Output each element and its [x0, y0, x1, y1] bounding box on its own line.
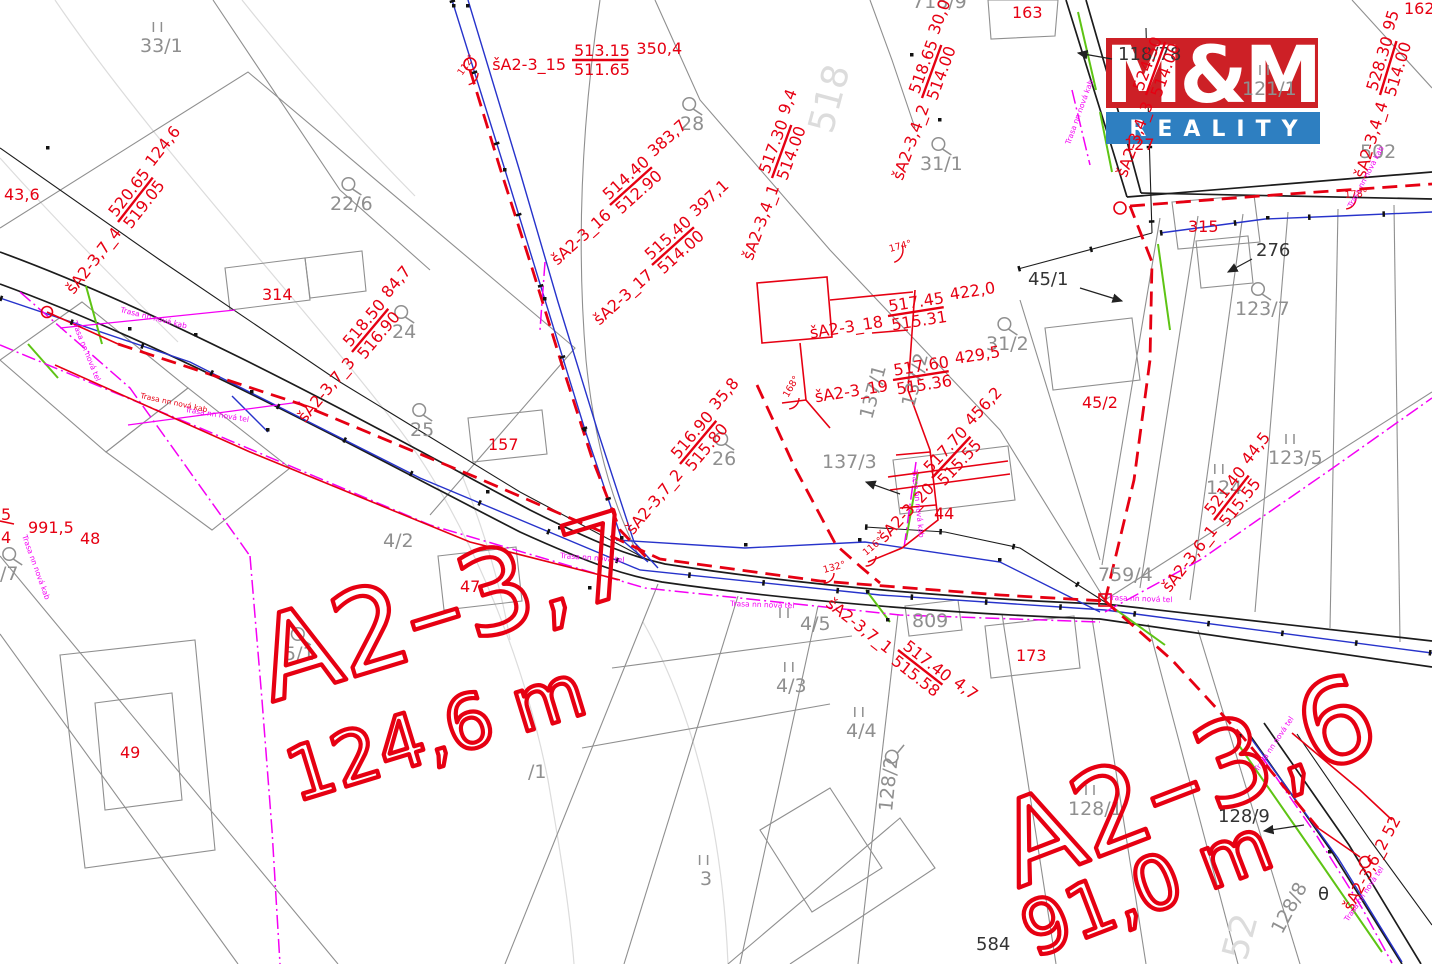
map-label: 49 — [120, 743, 140, 762]
shaft-chainage: 124,6 — [141, 122, 184, 170]
map-label: 4 — [1, 528, 11, 547]
shaft-name: šA2-3,4_1 — [738, 182, 784, 263]
angle-annotation: 174° — [888, 238, 913, 255]
shaft-label: šA2-3,7_3518.50516.9084,7 — [281, 262, 430, 429]
land-use-II-icon — [785, 662, 793, 672]
map-label: 3 — [700, 855, 712, 890]
shaft-name: šA2-3_17 — [589, 265, 657, 329]
trasa-annotation: Trasa nn nová tel — [1107, 593, 1173, 604]
map-label-text: 276 — [1256, 240, 1290, 261]
land-use-II-icon — [700, 855, 708, 865]
map-label: 31/1 — [920, 138, 963, 175]
shaft-chainage: 4,7 — [950, 673, 982, 704]
leader-arrow-icon — [1228, 259, 1252, 272]
trasa-annotation: Trasa nn nová kab — [119, 305, 189, 331]
map-label-text: 4/5 — [800, 613, 831, 635]
map-label: 4/4 — [846, 707, 877, 742]
angle-annotation: 178° — [1344, 188, 1368, 201]
map-label-text: šA2-3,6_2 52 — [1339, 813, 1406, 914]
map-label: θ — [1318, 884, 1329, 905]
shaft-name: šA2-3_18 — [808, 312, 884, 343]
map-label: 5 — [1, 505, 11, 524]
shaft-label: šA2-3_17515.40514.00397,1 — [579, 176, 747, 333]
map-label-text: 518 — [801, 60, 858, 137]
map-label-text: 137/3 — [822, 451, 877, 473]
route-titles-layer: A2–3,7124,6 mA2–3,691,0 m — [241, 486, 1394, 964]
shaft-chainage: 35,8 — [705, 374, 742, 414]
map-label-text: 5 — [1, 505, 11, 524]
map-label-text: 49 — [120, 743, 140, 762]
shaft-label: šA2-3,7_2516.90515.8035,8 — [609, 374, 758, 541]
map-label-text: 584 — [976, 934, 1010, 955]
map-label-text: 314 — [262, 285, 293, 304]
map-label-text: 4 — [1, 528, 11, 547]
shaft-top-elevation: 513.15 — [574, 41, 630, 60]
map-label-text: 121/1 — [1242, 78, 1297, 100]
map-label-text: 315 — [1188, 217, 1219, 236]
map-label-text: 128/2 — [875, 756, 903, 813]
map-label-text: 45/2 — [1082, 393, 1118, 412]
map-label: 52 — [1215, 909, 1266, 964]
map-label: 45/1 — [1028, 269, 1068, 290]
land-use-II-icon — [855, 707, 863, 717]
map-label: 22/6 — [330, 178, 373, 215]
map-label: 123/5 — [1268, 434, 1323, 469]
map-label: 4/3 — [776, 662, 807, 697]
land-use-II-icon — [153, 22, 161, 32]
map-label-text: 128/8 — [1267, 879, 1312, 938]
shaft-label: šA2-3_18517.45515.31422,0 — [806, 278, 1000, 347]
land-use-II-icon — [1215, 464, 1223, 474]
map-label: 518 — [801, 60, 858, 137]
shaft-name: šA2-3,6_1 — [1158, 522, 1222, 596]
map-label: 45/2 — [1082, 393, 1118, 412]
trasa-annotation: Trasa nn nová kab — [1063, 78, 1095, 146]
map-label-text: 162 — [1404, 0, 1432, 18]
shaft-label: šA2-3_15513.15511.65350,4 — [492, 39, 682, 79]
map-label-text: 22/6 — [330, 193, 373, 215]
map-label: 48 — [80, 529, 100, 548]
map-label-text: 48 — [80, 529, 100, 548]
map-label-text: θ — [1318, 884, 1329, 905]
map-label: 128/8 — [1267, 879, 1312, 938]
land-use-II-icon — [1286, 434, 1294, 444]
angle-annotation: 168° — [781, 374, 802, 399]
map-label-text: /1 — [528, 761, 547, 783]
map-label: /1 — [528, 761, 547, 783]
map-label: 991,5 — [28, 518, 74, 537]
map-label: 163 — [1012, 3, 1043, 22]
map-label: 759/4 — [1098, 564, 1153, 586]
trasa-annotation: Trasa nn nová kab — [20, 533, 52, 601]
map-label-text: 52 — [1215, 909, 1266, 964]
leader-arrow-icon — [866, 482, 900, 494]
map-label-text: 759/4 — [1098, 564, 1153, 586]
shaft-chainage: 456,2 — [961, 383, 1006, 429]
angle-annotation: 112° — [455, 53, 477, 78]
contour-lines — [0, 0, 728, 964]
shaft-chainage: 422,0 — [948, 278, 996, 304]
map-label-text: 25 — [410, 419, 434, 441]
cadastral-map: M&M REALITY 33/122/6282425265/14/24/54/3… — [0, 0, 1432, 964]
map-label: 137/3 — [822, 451, 877, 473]
shaft-name: šA2-3_15 — [492, 55, 566, 75]
map-label-text: 157 — [488, 435, 519, 454]
map-label: šA2-3,6_2 52 — [1339, 813, 1406, 914]
map-label: 173 — [1016, 646, 1047, 665]
map-label: 809 — [912, 610, 948, 632]
map-label: 315 — [1188, 217, 1219, 236]
shaft-label: šA2-3_20517.70515.55456,2 — [862, 383, 1021, 549]
map-label: 44 — [934, 504, 954, 523]
map-label: 162 — [1404, 0, 1432, 18]
map-label-text: 4/4 — [846, 720, 877, 742]
map-label: 314 — [262, 285, 293, 304]
trasa-annotation: Trasa nn nová kab — [139, 391, 209, 414]
shaft-chainage: 350,4 — [636, 39, 682, 58]
shaft-chainage: 397,1 — [686, 176, 733, 221]
shaft-label: šA2-3,7_1517.40515.584,7 — [819, 581, 981, 720]
map-label-text: /7 — [0, 563, 19, 585]
shaft-chainage: 383,7 — [644, 116, 691, 161]
trasa-annotation: Trasa nn nová tel — [729, 599, 795, 610]
map-label-text: 44 — [934, 504, 954, 523]
shaft-chainage: 9,4 — [774, 86, 801, 116]
map-label: 584 — [976, 934, 1010, 955]
map-label: 4/5 — [780, 608, 831, 635]
map-label-text: 163 — [1012, 3, 1043, 22]
map-label: 157 — [488, 435, 519, 454]
shaft-name: šA2-3,7_2 — [622, 465, 688, 538]
logo-reality-text: REALITY — [1129, 117, 1308, 142]
map-label: 276 — [1256, 240, 1290, 261]
map-label: 128/2 — [875, 743, 904, 813]
map-label: 33/1 — [140, 22, 183, 57]
map-label-text: 123/7 — [1235, 298, 1290, 320]
map-label-text: 31/1 — [920, 153, 963, 175]
map-label-text: 45/1 — [1028, 269, 1068, 290]
shaft-chainage: 95 — [1379, 8, 1403, 33]
map-label-text: 4/3 — [776, 675, 807, 697]
shaft-chainage: 429,5 — [953, 342, 1001, 368]
map-label-text: 43,6 — [4, 185, 40, 204]
leader-arrow-icon — [1080, 288, 1122, 301]
map-label: 25 — [410, 404, 434, 441]
shaft-chainage: 84,7 — [377, 262, 414, 302]
map-canvas: M&M REALITY 33/122/6282425265/14/24/54/3… — [0, 0, 1432, 964]
map-label-text: 26 — [712, 448, 736, 470]
map-label: 43,6 — [4, 185, 40, 204]
map-label-text: 33/1 — [140, 35, 183, 57]
map-label-text: 809 — [912, 610, 948, 632]
shaft-bottom-elevation: 511.65 — [574, 60, 630, 79]
map-label-text: 991,5 — [28, 518, 74, 537]
land-use-Q-icon — [897, 744, 904, 754]
map-label-text: 173 — [1016, 646, 1047, 665]
map-label-text: 3 — [700, 868, 712, 890]
map-label-text: 123/5 — [1268, 447, 1323, 469]
